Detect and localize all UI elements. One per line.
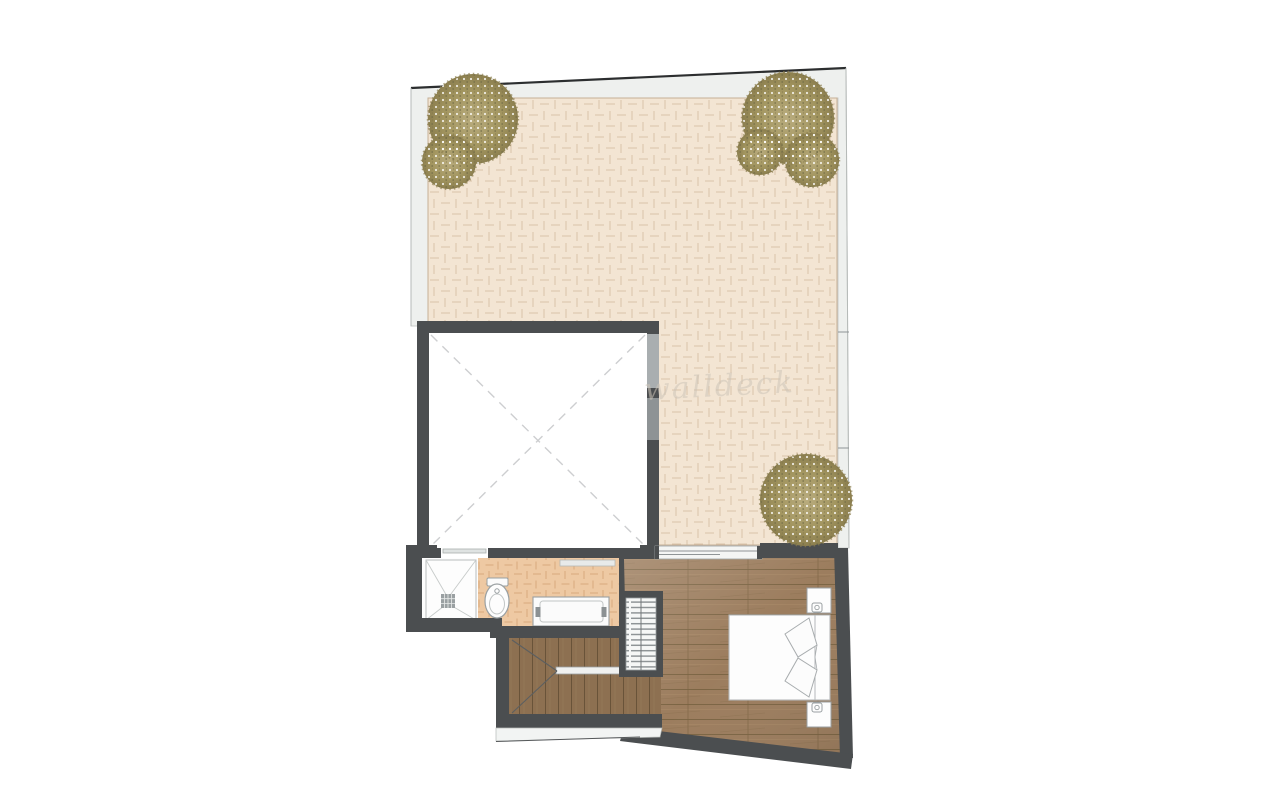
sliding-glass-door <box>655 546 762 559</box>
toilet <box>485 578 509 618</box>
window-segment-upper <box>647 334 659 388</box>
nightstand-lower <box>807 702 831 727</box>
wardrobe <box>619 591 663 677</box>
floor-plan-image: walldeck <box>0 0 1275 786</box>
tree-middle-right <box>760 454 852 546</box>
floor-plan-drawing <box>0 0 1275 786</box>
window-segment-lower <box>647 398 659 440</box>
nightstand-upper <box>807 588 831 613</box>
towel-rail <box>560 560 615 566</box>
shower-glass-door <box>443 549 486 553</box>
void-room <box>417 321 659 560</box>
tree-top-right <box>737 72 839 187</box>
bathroom <box>406 545 626 632</box>
vanity-basin <box>533 597 609 626</box>
